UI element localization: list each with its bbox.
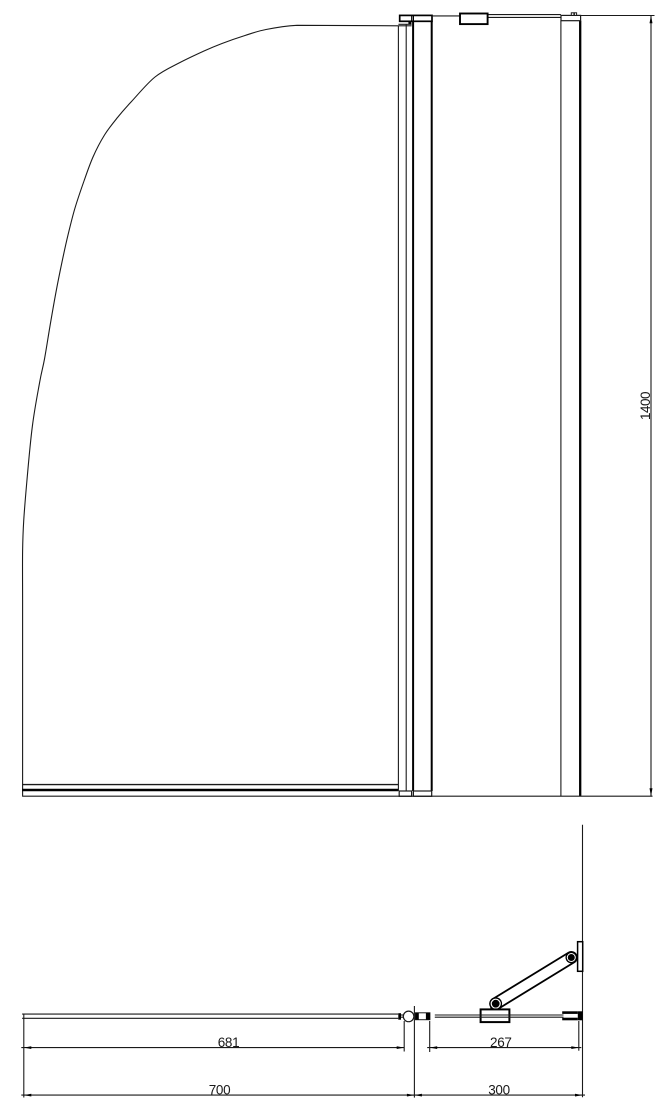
svg-text:681: 681 — [218, 1035, 240, 1050]
svg-text:267: 267 — [490, 1035, 512, 1050]
svg-text:700: 700 — [209, 1082, 231, 1097]
svg-text:1400: 1400 — [638, 392, 653, 420]
svg-text:300: 300 — [488, 1082, 510, 1097]
